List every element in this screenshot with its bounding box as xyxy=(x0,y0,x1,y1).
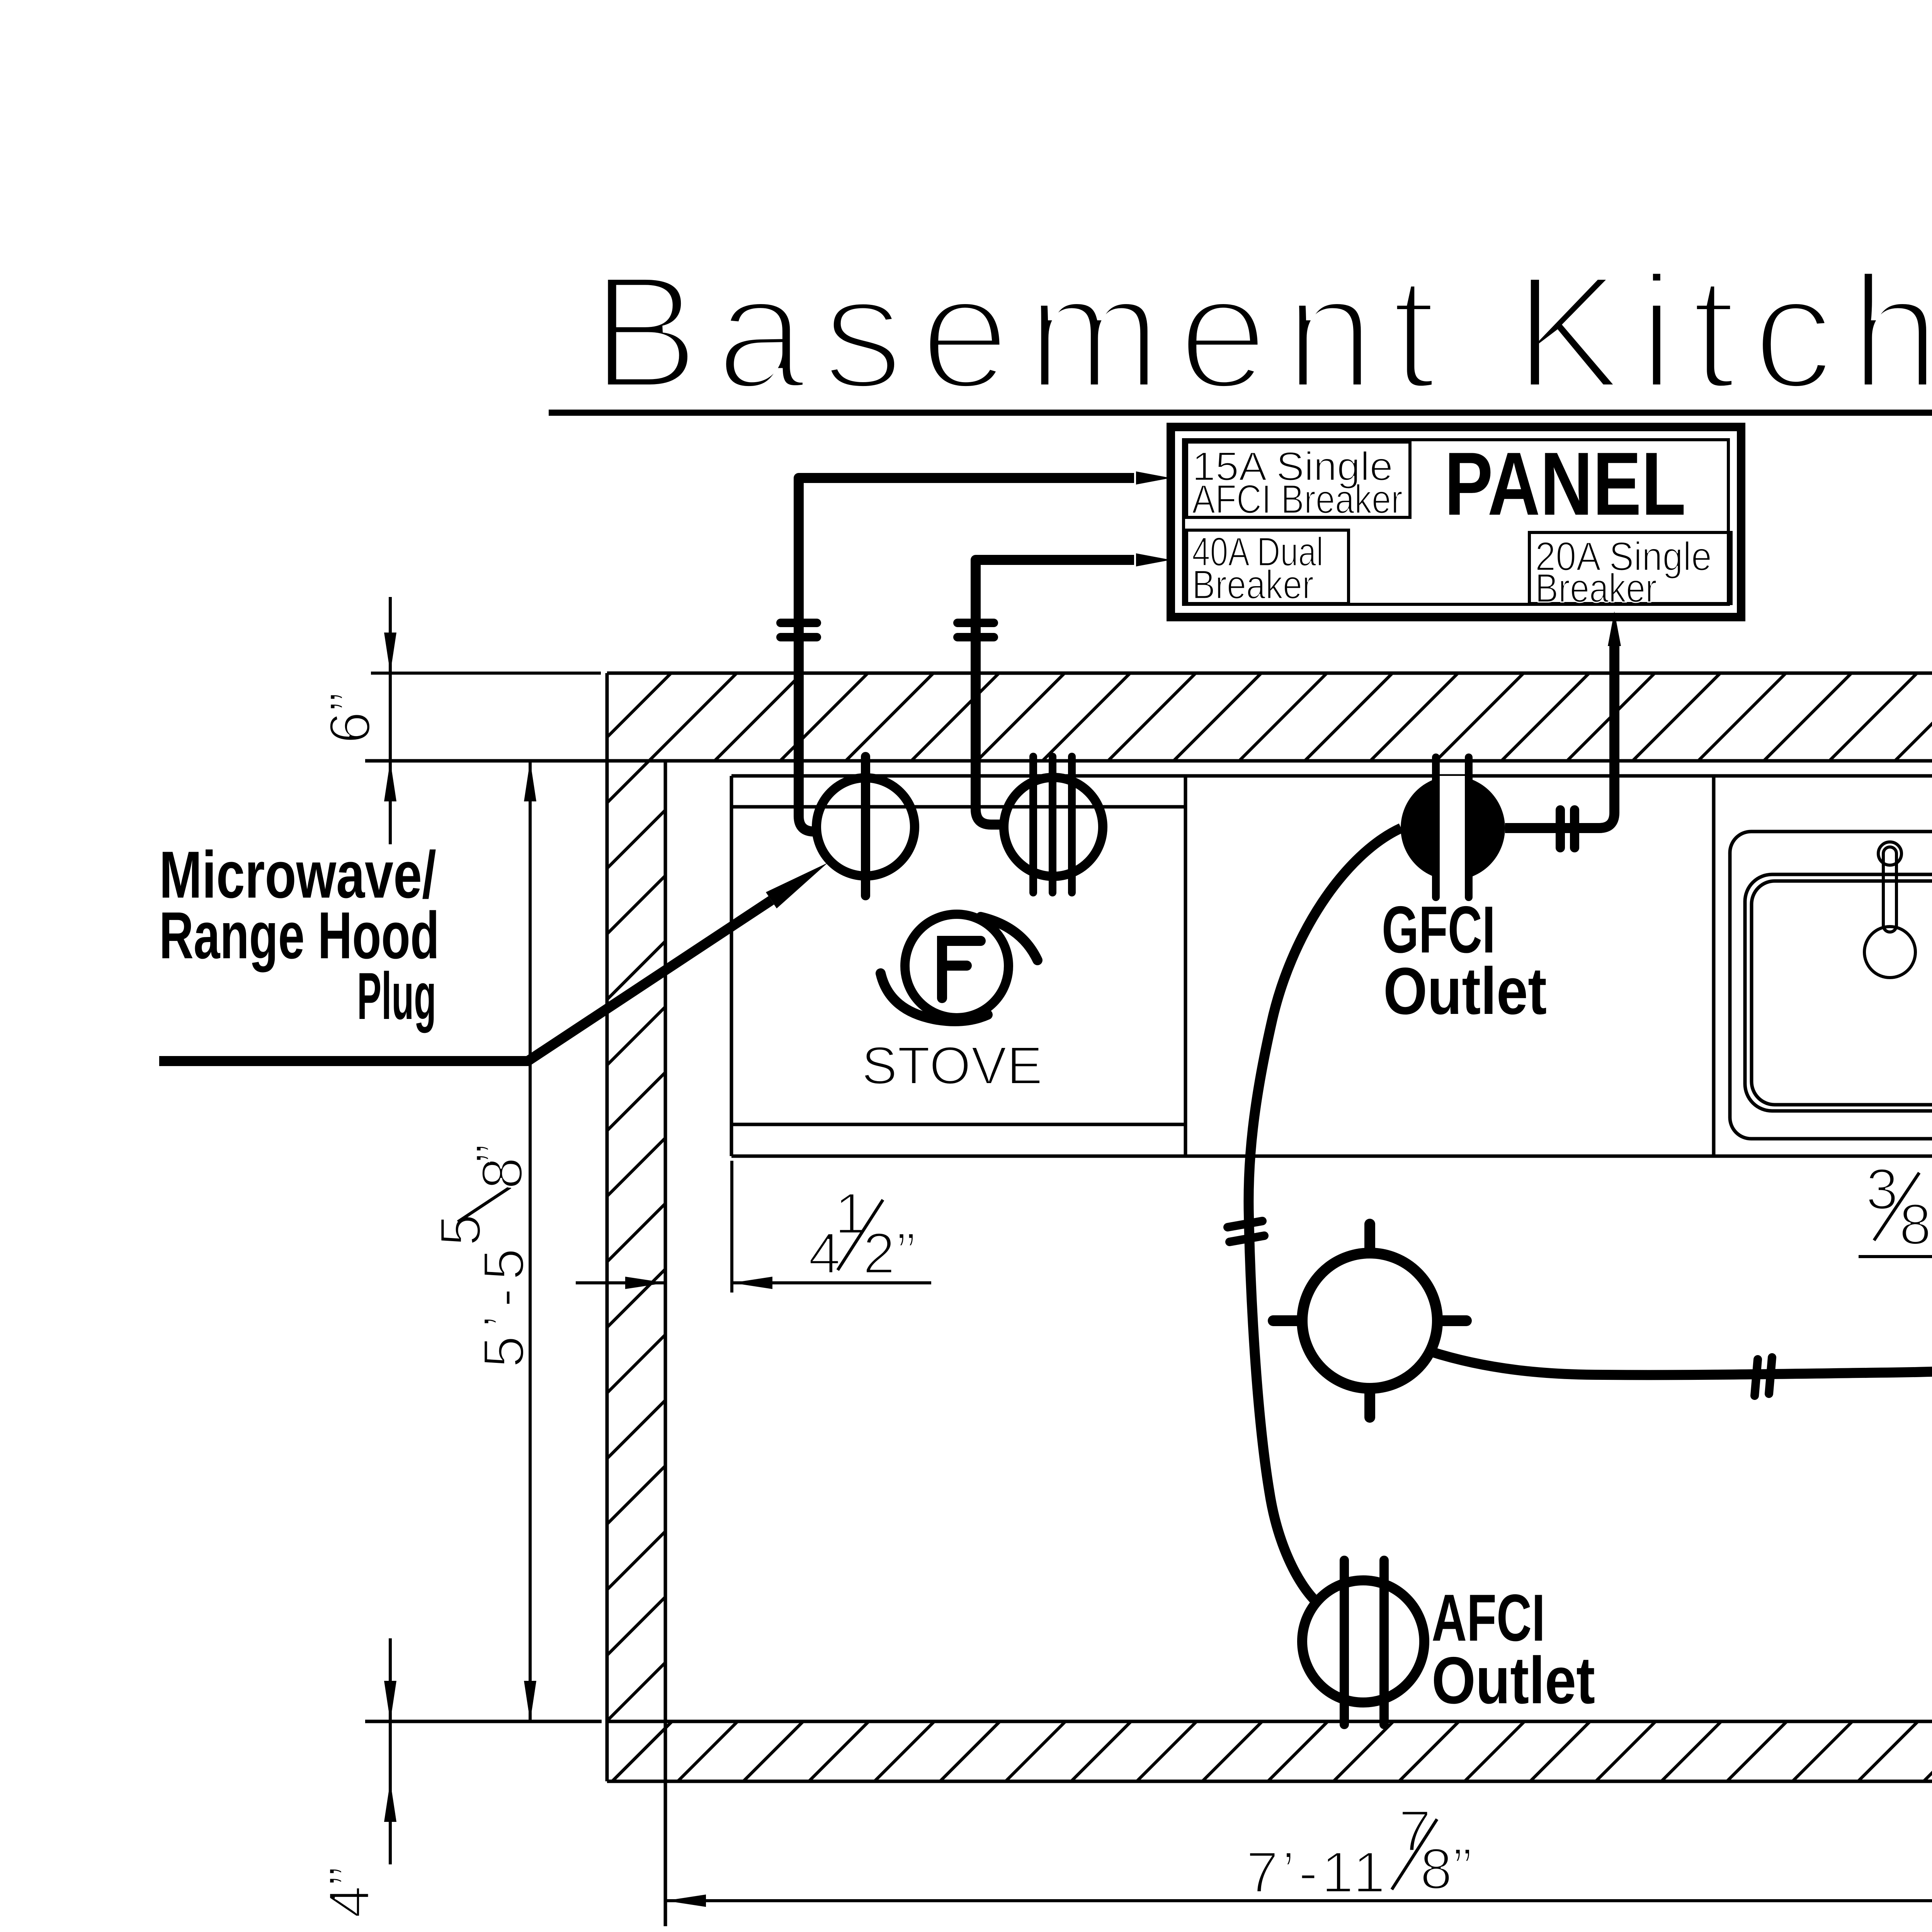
svg-text:Breaker: Breaker xyxy=(1192,562,1314,607)
svg-text:Breaker: Breaker xyxy=(1535,566,1657,611)
svg-text:4”: 4” xyxy=(316,1866,381,1918)
svg-text:”: ” xyxy=(896,1221,916,1286)
svg-text:PANEL: PANEL xyxy=(1444,434,1686,534)
svg-text:”: ” xyxy=(1453,1836,1472,1901)
svg-text:8: 8 xyxy=(1420,1836,1452,1901)
svg-text:8: 8 xyxy=(1899,1192,1931,1257)
svg-text:Plug: Plug xyxy=(357,959,436,1033)
svg-text:1: 1 xyxy=(835,1181,867,1246)
svg-text:7’-11: 7’-11 xyxy=(1246,1840,1385,1905)
svg-text:Basement Kitchen: Basement Kitchen xyxy=(591,241,1932,423)
svg-text:”: ” xyxy=(463,1144,528,1163)
svg-text:Outlet: Outlet xyxy=(1383,954,1547,1028)
svg-text:STOVE: STOVE xyxy=(862,1036,1043,1095)
svg-text:AFCI Breaker: AFCI Breaker xyxy=(1192,477,1403,522)
svg-text:”: ” xyxy=(1930,1189,1932,1253)
svg-text:Outlet: Outlet xyxy=(1432,1643,1595,1718)
svg-text:6”: 6” xyxy=(317,692,382,743)
svg-text:2: 2 xyxy=(863,1221,895,1286)
